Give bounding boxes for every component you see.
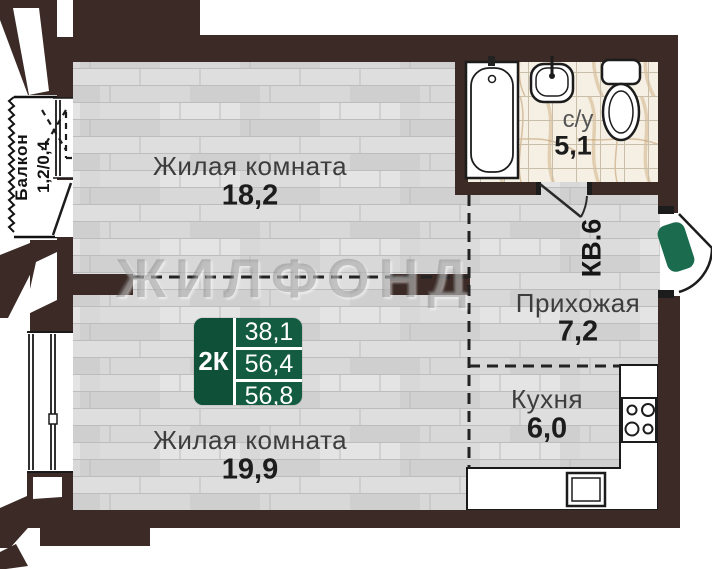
window (27, 332, 73, 472)
floor-plan: ЖИЛФОНД Жилая комната 18,2 Жилая комната… (0, 0, 712, 569)
balcony-area: 1,2/0,4 (34, 92, 54, 242)
hallway-name: Прихожая (516, 290, 640, 316)
bathtub (466, 56, 518, 178)
apartment-areas: 38,1 56,4 56,8 (236, 318, 302, 405)
floorplan-graphics (0, 0, 712, 569)
stove (622, 398, 656, 442)
kitchen-name: Кухня (511, 386, 583, 412)
kitchen-area: 6,0 (527, 415, 567, 444)
balcony-door (53, 180, 73, 237)
balcony-window (53, 98, 73, 178)
hallway-area: 7,2 (558, 318, 598, 347)
living1-name: Жилая комната (153, 153, 347, 179)
apartment-info-badge: 2К 38,1 56,4 56,8 (194, 318, 302, 405)
balcony-label: Балкон 1,2/0,4 (12, 92, 54, 242)
kitchen-sink (567, 473, 605, 506)
living2-name: Жилая комната (153, 427, 347, 453)
entrance-apartment-label: КВ.6 (579, 219, 606, 278)
toilet (602, 60, 640, 140)
area-value: 56,4 (236, 347, 302, 379)
total-area-value: 56,8 (236, 379, 302, 405)
living2-area: 19,9 (222, 456, 278, 485)
entrance-door (655, 206, 712, 298)
bathroom-name: с/у (563, 108, 594, 132)
balcony-name: Балкон (12, 92, 32, 242)
bathroom-area: 5,1 (554, 133, 592, 160)
living1-area: 18,2 (222, 182, 278, 211)
apartment-type: 2К (194, 318, 236, 405)
living-area-value: 38,1 (236, 318, 302, 347)
